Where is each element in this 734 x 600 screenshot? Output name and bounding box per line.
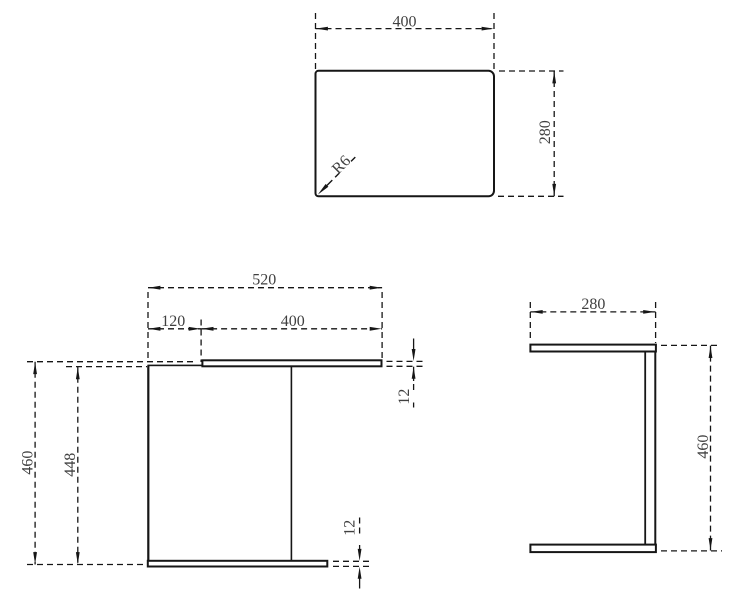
svg-text:460: 460 — [695, 435, 712, 459]
svg-text:280: 280 — [581, 296, 605, 313]
svg-text:520: 520 — [252, 271, 276, 288]
svg-text:280: 280 — [537, 120, 554, 144]
svg-text:400: 400 — [281, 313, 305, 330]
svg-text:120: 120 — [161, 313, 185, 330]
svg-text:400: 400 — [393, 13, 417, 30]
svg-text:448: 448 — [62, 453, 79, 477]
svg-text:12: 12 — [396, 389, 413, 405]
svg-text:12: 12 — [342, 520, 359, 536]
svg-text:460: 460 — [20, 451, 37, 475]
